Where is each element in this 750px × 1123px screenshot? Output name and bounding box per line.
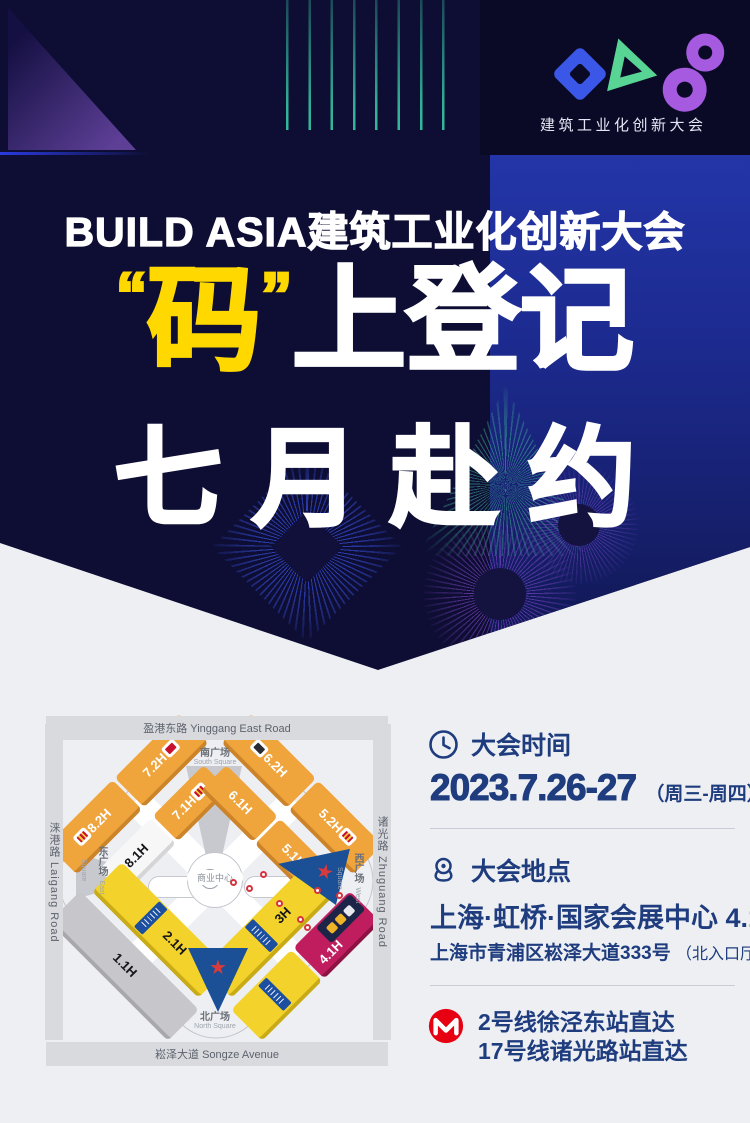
event-weekdays: （周三-周四） [645,784,750,805]
logo-eight-icon [649,29,739,118]
divider [430,985,735,986]
gate-marker-icon [276,900,283,907]
time-heading-row: 大会时间 [428,726,571,762]
slogan-rest: 上登记 [292,258,634,385]
shanghai-metro-icon [428,1008,464,1044]
logo-shapes [540,32,740,112]
location-heading-row: 大会地点 [428,852,571,888]
event-date: 2023.7.26-27 （周三-周四） [430,767,750,809]
hero-section: 建筑工业化创新大会 BUILD ASIA建筑工业化创新大会 “码”上登记 七月赴… [0,0,750,672]
east-square-label: 东广场 East Square [74,840,110,900]
road-zhuguang: 诸光路 Zhuguang Road [373,724,391,1040]
gate-marker-icon [246,885,253,892]
venue-map: 8.2H 7.2H 8.1H 7.1H 6.2H 5.2H [40,710,396,1082]
decor-purple-triangle [8,8,136,150]
address-note: （北入口厅） [676,946,750,963]
metro-line-17: 17号线诸光路站直达 [478,1037,688,1066]
build-asia-banner-icon [258,977,292,1011]
event-badge-icon [326,921,339,934]
venue-address: 上海市青浦区崧泽大道333号 （北入口厅） [430,938,750,965]
metro-lines: 2号线徐泾东站直达 17号线诸光路站直达 [478,1008,688,1067]
clock-icon [428,729,459,760]
conference-logo: 建筑工业化创新大会 [540,32,740,142]
hero-slogan-line2: 七月赴约 [0,392,750,548]
star-icon: ★ [209,958,227,978]
logo-text: 建筑工业化创新大会 [540,114,740,135]
logo-triangle-icon [601,37,663,101]
divider [430,828,735,829]
decor-teal-bars [286,0,449,130]
hero-title: BUILD ASIA建筑工业化创新大会 [0,198,750,258]
quote-close: ” [261,261,292,330]
gate-marker-icon [297,916,304,923]
build-asia-banner-icon [245,919,279,953]
quote-open: “ [116,261,147,330]
gate-marker-icon [260,871,267,878]
road-songze-avenue: 崧泽大道 Songze Avenue [46,1042,388,1066]
location-pin-icon [428,855,459,886]
time-heading: 大会时间 [471,726,571,762]
decor-blue-line [0,152,150,155]
gate-marker-icon [314,887,321,894]
event-poster: 建筑工业化创新大会 BUILD ASIA建筑工业化创新大会 “码”上登记 七月赴… [0,0,750,1123]
logo-diamond-icon [552,46,609,103]
metro-line-2: 2号线徐泾东站直达 [478,1008,688,1037]
west-square-label: 西广场 West Square [330,848,366,908]
venue-name: 上海·虹桥·国家会展中心 4.1H [430,896,750,935]
south-square-label: 南广场South Square [160,744,270,766]
slogan-highlight: 码 [147,258,261,385]
gate-marker-icon [304,924,311,931]
event-details-panel: 大会时间 2023.7.26-27 （周三-周四） 大会地点 上海·虹桥·国家会… [420,712,735,1092]
road-yinggang-east: 盈港东路 Yinggang East Road [46,716,388,740]
hero-slogan-line1: “码”上登记 [0,258,750,386]
road-laigang: 涞港路 Laigang Road [45,724,63,1040]
north-square-label: 北广场North Square [170,1008,260,1030]
gate-marker-icon [230,879,237,886]
location-heading: 大会地点 [471,852,571,888]
metro-info-row: 2号线徐泾东站直达 17号线诸光路站直达 [428,1008,688,1067]
build-asia-banner-icon [134,901,168,935]
event-badge-icon [334,912,347,925]
